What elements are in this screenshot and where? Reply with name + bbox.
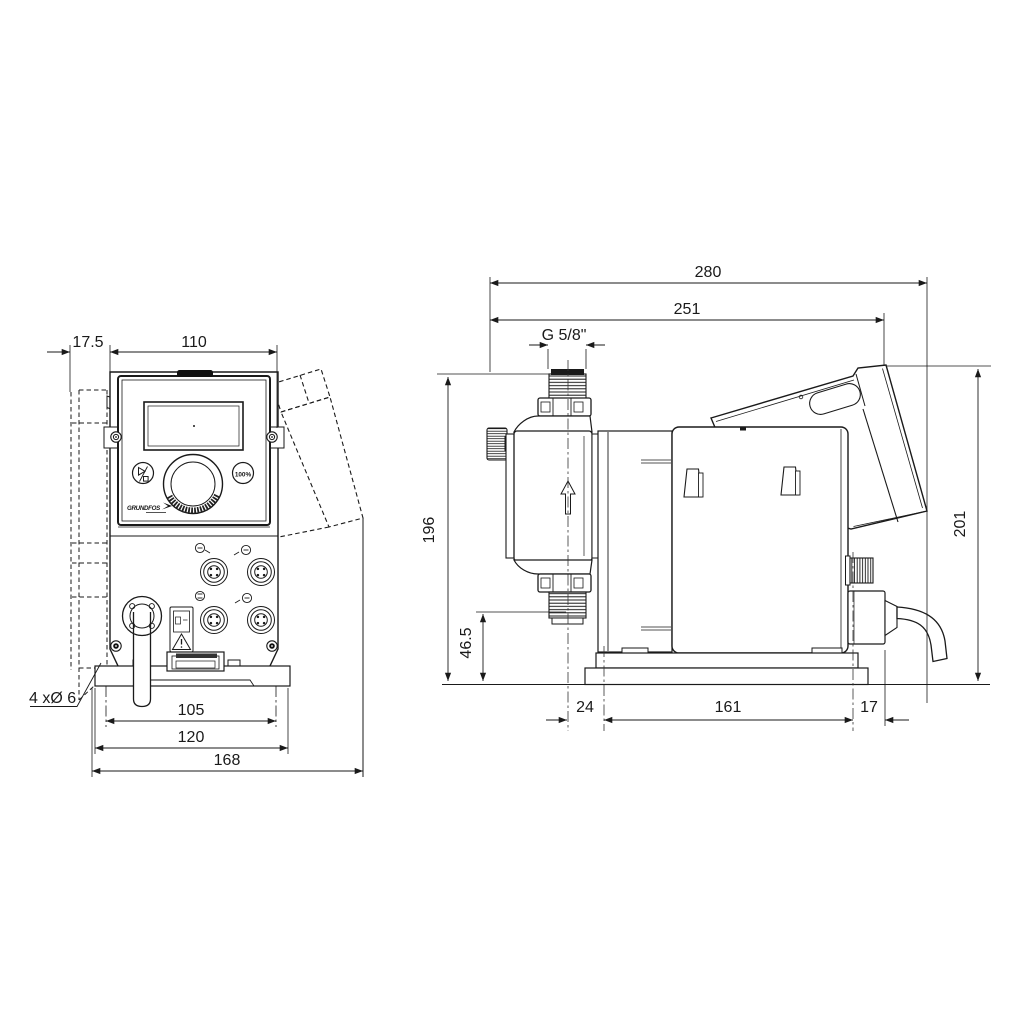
dim-label-168: 168 (214, 752, 241, 769)
panel-screw-right (267, 432, 277, 442)
capacity-button-label: 100% (235, 471, 252, 478)
head-body (514, 431, 592, 561)
m12-connector (248, 607, 275, 634)
dim-label-24: 24 (576, 699, 594, 716)
wall-bracket-hidden (71, 390, 107, 700)
motor-clip (684, 469, 703, 497)
connector-icon (195, 591, 204, 600)
front-view: 100% GRUNDFOS (29, 334, 363, 777)
click-wheel (164, 455, 223, 514)
dim-label-110: 110 (181, 334, 207, 351)
dim-label-201: 201 (952, 511, 969, 538)
dim-label-105: 105 (178, 702, 205, 719)
power-cable-side (897, 607, 947, 662)
m12-connector (248, 559, 275, 586)
panel-screw-left (111, 432, 121, 442)
dim-label-17-5: 17.5 (72, 334, 103, 351)
dosing-head (487, 369, 592, 624)
logo-text: GRUNDFOS (127, 505, 161, 512)
panel-top-tab (177, 370, 213, 377)
dim-label-196: 196 (421, 517, 438, 544)
deaeration-knob (487, 428, 507, 460)
side-view: 280 251 G 5/8" 196 46.5 (421, 264, 991, 731)
capacity-button: 100% (233, 463, 254, 484)
dim-label-161: 161 (715, 699, 742, 716)
dim-label-251: 251 (674, 301, 701, 318)
display (144, 402, 243, 450)
dim-label-17: 17 (860, 699, 878, 716)
motor-clip (781, 467, 800, 495)
bottom-thread (549, 592, 586, 618)
m12-connector (201, 559, 228, 586)
dimensional-drawing: 100% GRUNDFOS (0, 0, 1024, 1024)
dim-label-46-5: 46.5 (458, 627, 475, 658)
m12-connector (201, 607, 228, 634)
mounting-plate-side (442, 648, 990, 685)
dim-label-280: 280 (695, 264, 722, 281)
corner-screw (111, 641, 121, 651)
top-thread (549, 374, 586, 399)
cable-gland-side (848, 591, 885, 644)
motor-housing (672, 427, 848, 653)
drawing-canvas: 100% GRUNDFOS (0, 0, 1024, 1024)
corner-screw (267, 641, 277, 651)
dim-label-120: 120 (178, 729, 205, 746)
rear-threaded-plug (850, 558, 873, 583)
din-clip (167, 652, 224, 671)
control-panel: 100% GRUNDFOS (104, 370, 284, 525)
start-stop-button (133, 463, 154, 484)
control-cube-hidden (272, 369, 363, 537)
note-mounting-holes: 4 xØ 6 (29, 690, 76, 707)
dim-label-g58: G 5/8" (542, 327, 587, 344)
warning-label (170, 607, 193, 652)
rear-connections (846, 556, 948, 662)
adapter-housing (592, 431, 672, 652)
